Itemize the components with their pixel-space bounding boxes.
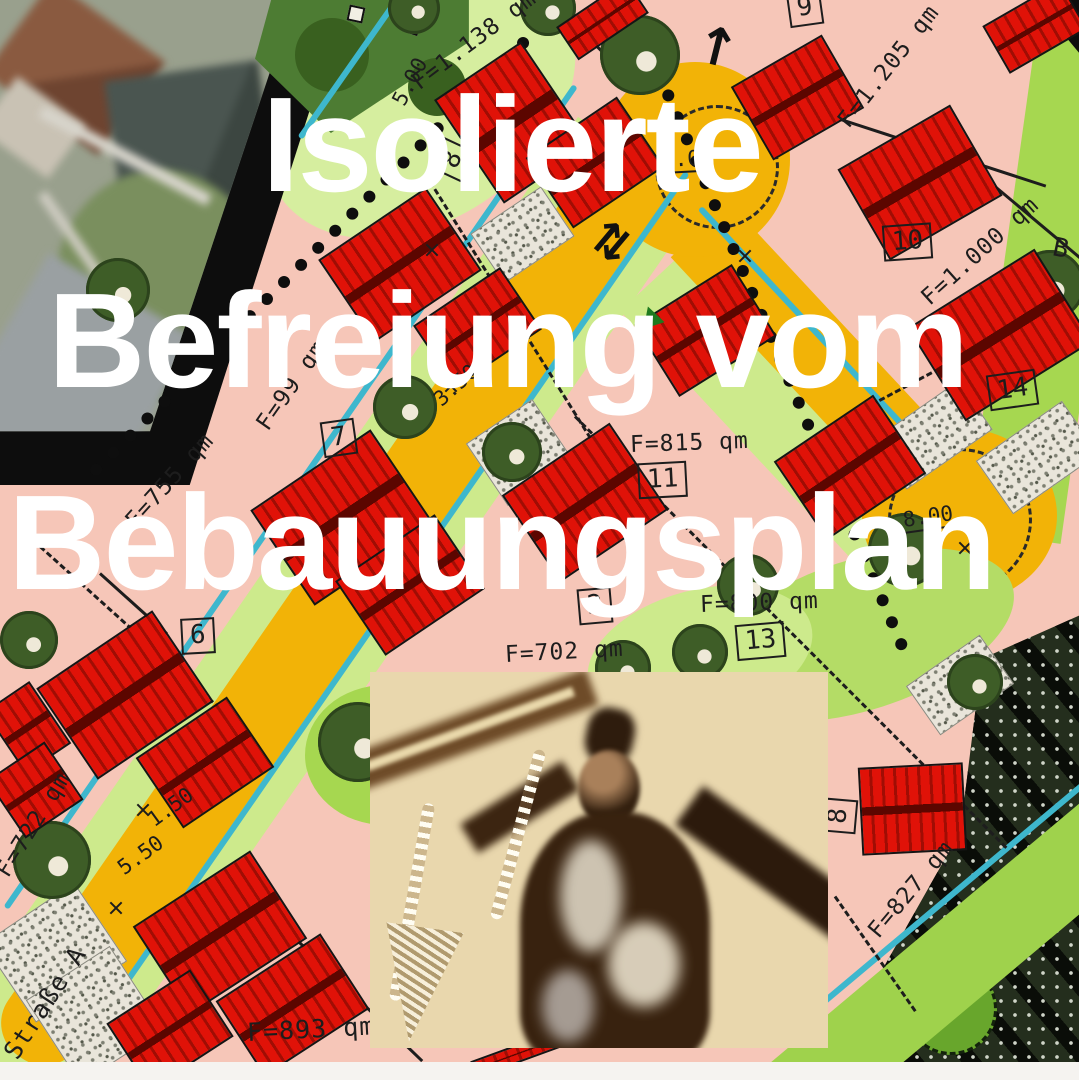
bottom-strip (0, 1062, 1079, 1080)
plot-number: 13 (735, 621, 787, 661)
planned-house (858, 762, 967, 855)
tree-symbol (0, 611, 58, 669)
tree-symbol (947, 654, 1003, 710)
thumbnail-canvas: ↑ ⇅ F=1.138 qm F=1.205 qm F=1.000 qm F=7… (0, 0, 1079, 1080)
statue-highlight (542, 970, 594, 1042)
title-line-2: Befreiung vom (48, 273, 967, 408)
plot-number: 14 (986, 369, 1040, 411)
plot-number: 6 (180, 617, 215, 655)
justice-statue-photo (370, 672, 828, 1048)
play-equipment-symbol (347, 5, 366, 24)
scales-pan (370, 922, 463, 1047)
plot-number: 7 (320, 418, 358, 458)
title-line-3: Bebauungsplan (8, 475, 995, 610)
plot-number: 9 (786, 0, 824, 28)
title-line-1: Isolierte (262, 77, 762, 212)
statue-highlight (560, 840, 622, 952)
area-label: F=1.205 qm (833, 0, 945, 133)
area-label: F=815 qm (630, 428, 750, 458)
area-label: F=893 qm (246, 1011, 376, 1047)
statue-highlight (608, 922, 680, 1007)
plot-number: 10 (882, 222, 934, 261)
